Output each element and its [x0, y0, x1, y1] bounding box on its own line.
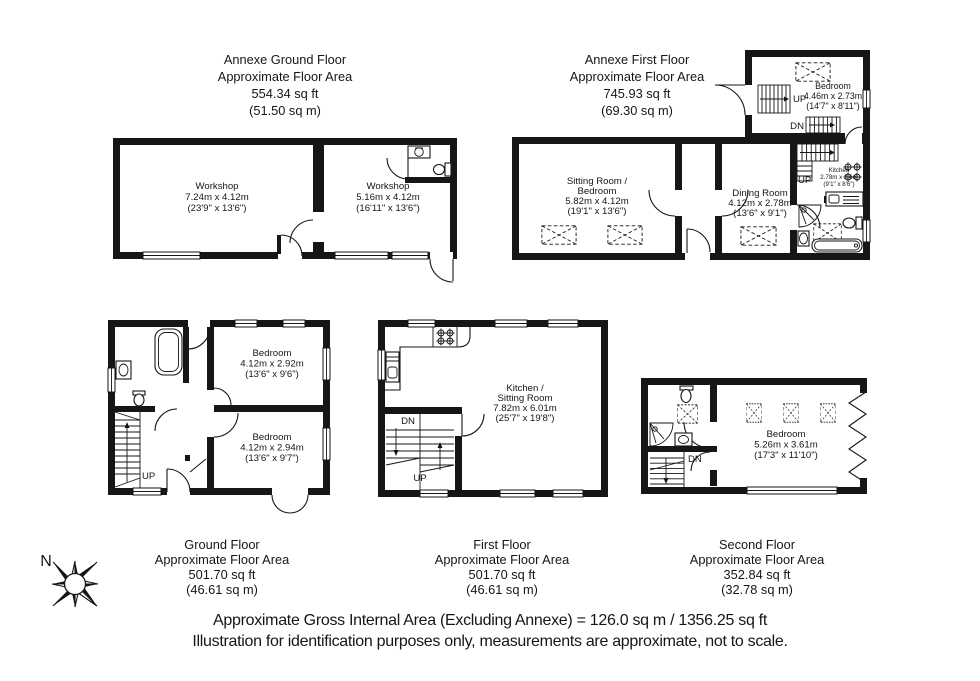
second-title: Second Floor Approximate Floor Area 352.…: [690, 537, 825, 597]
stairs-up-label: UP: [142, 471, 155, 482]
room-dim-imperial: (14'7" x 8'11"): [806, 101, 860, 111]
plan-title-line: 745.93 sq ft: [604, 86, 671, 101]
toilet-icon: [133, 391, 145, 406]
annexe-ground-floor-plan: Annexe Ground Floor Approximate Floor Ar…: [113, 52, 457, 282]
floorplan-drawing: Annexe Ground Floor Approximate Floor Ar…: [0, 0, 980, 681]
stairs-down-label: DN: [401, 416, 415, 427]
room-name: Workshop: [195, 181, 238, 192]
first-floor-plan: DN UP Kitchen / Sitting Room 7.82m x 6.0…: [378, 320, 608, 597]
footer-disclaimer: Illustration for identification purposes…: [192, 633, 787, 650]
plan-title-line: Ground Floor: [184, 537, 260, 552]
ground-floor-plan: UP Bedroom 4.12m x 2.92m (13'6" x 9'6") …: [108, 320, 330, 597]
stairs-up-label: UP: [798, 175, 811, 186]
room-name: Bedroom: [815, 81, 851, 91]
room-dim-imperial: (23'9" x 13'6"): [187, 203, 246, 214]
room-dim-imperial: (13'6" x 9'1"): [733, 208, 787, 219]
plan-title-line: Approximate Floor Area: [155, 552, 290, 567]
room-dim-metric: 4.46m x 2.73m: [804, 91, 862, 101]
room-dim-imperial: (19'1" x 13'6"): [567, 206, 626, 217]
plan-title-line: Approximate Floor Area: [218, 69, 353, 84]
room-name: Bedroom: [253, 432, 292, 443]
plan-title-line: Annexe Ground Floor: [224, 52, 347, 67]
plan-title-line: 554.34 sq ft: [252, 86, 319, 101]
plan-title-line: Second Floor: [719, 537, 796, 552]
room-name: Workshop: [366, 181, 409, 192]
plan-title-line: Approximate Floor Area: [435, 552, 570, 567]
bath-icon: [812, 239, 862, 252]
room-dim-imperial: (17'3" x 11'10"): [754, 450, 818, 461]
plan-title-line: 501.70 sq ft: [469, 567, 536, 582]
bath-icon: [155, 329, 182, 375]
room-dim-imperial: (13'6" x 9'7"): [245, 453, 299, 464]
plan-title-line: Approximate Floor Area: [570, 69, 705, 84]
first-title: First Floor Approximate Floor Area 501.7…: [435, 537, 570, 597]
room-dim-imperial: (13'6" x 9'6"): [245, 369, 299, 380]
room-dim-imperial: (9'1" x 8'6"): [823, 181, 854, 188]
room-name: Bedroom: [767, 429, 806, 440]
stairs-down-label: DN: [790, 121, 804, 132]
plan-title-line: Approximate Floor Area: [690, 552, 825, 567]
kitchen-sink-icon: [386, 352, 399, 382]
second-windows: [747, 487, 837, 494]
plan-title-line: (32.78 sq m): [721, 582, 793, 597]
room-dim-metric: 2.78m x 2.6m: [820, 174, 858, 181]
plan-title-line: (69.30 sq m): [601, 103, 673, 118]
room-dim-imperial: (25'7" x 19'8"): [495, 413, 554, 424]
annexe-first-title: Annexe First Floor Approximate Floor Are…: [570, 52, 705, 118]
plan-title-line: (46.61 sq m): [466, 582, 538, 597]
compass-rose-icon: N: [40, 553, 98, 607]
room-dim-metric: 5.16m x 4.12m: [356, 192, 419, 203]
annexe-ground-title: Annexe Ground Floor Approximate Floor Ar…: [218, 52, 353, 118]
room-name: Kitchen: [829, 167, 850, 174]
stairs-down-label: DN: [688, 454, 702, 465]
footer: Approximate Gross Internal Area (Excludi…: [192, 612, 787, 650]
compass-north-label: N: [40, 553, 52, 570]
room-dim-imperial: (16'11" x 13'6"): [356, 203, 420, 214]
room-name: Bedroom: [253, 348, 292, 359]
room-dim-metric: 4.12m x 2.94m: [240, 443, 303, 454]
stairs-up-label: UP: [413, 473, 426, 484]
annexe-first-floor-plan: Annexe First Floor Approximate Floor Are…: [512, 50, 870, 260]
plan-title-line: (46.61 sq m): [186, 582, 258, 597]
sitting-bedroom-label: Sitting Room / Bedroom 5.82m x 4.12m (19…: [565, 176, 628, 217]
plan-title-line: 352.84 sq ft: [724, 567, 791, 582]
plan-title-line: 501.70 sq ft: [189, 567, 256, 582]
kitchen-sink-icon: [826, 192, 863, 206]
plan-title-line: First Floor: [473, 537, 531, 552]
sink-icon: [798, 231, 809, 246]
footer-gross-area: Approximate Gross Internal Area (Excludi…: [213, 612, 768, 629]
ground-title: Ground Floor Approximate Floor Area 501.…: [155, 537, 290, 597]
plan-title-line: Annexe First Floor: [585, 52, 690, 67]
floorplan-page: Annexe Ground Floor Approximate Floor Ar…: [0, 0, 980, 681]
room-dim-metric: 7.24m x 4.12m: [185, 192, 248, 203]
room-dim-metric: 5.26m x 3.61m: [754, 440, 817, 451]
sink-icon: [675, 433, 692, 446]
toilet-icon: [434, 163, 452, 176]
dining-room-label: Dining Room 4.12m x 2.78m (13'6" x 9'1"): [728, 188, 791, 219]
toilet-icon: [843, 217, 862, 229]
plan-title-line: (51.50 sq m): [249, 103, 321, 118]
ground-walls: [108, 320, 330, 495]
sink-icon: [116, 361, 131, 379]
room-dim-metric: 4.12m x 2.92m: [240, 359, 303, 370]
second-floor-plan: DN Bedroom 5.26m x 3.61m (17'3" x 11'10"…: [641, 378, 867, 597]
